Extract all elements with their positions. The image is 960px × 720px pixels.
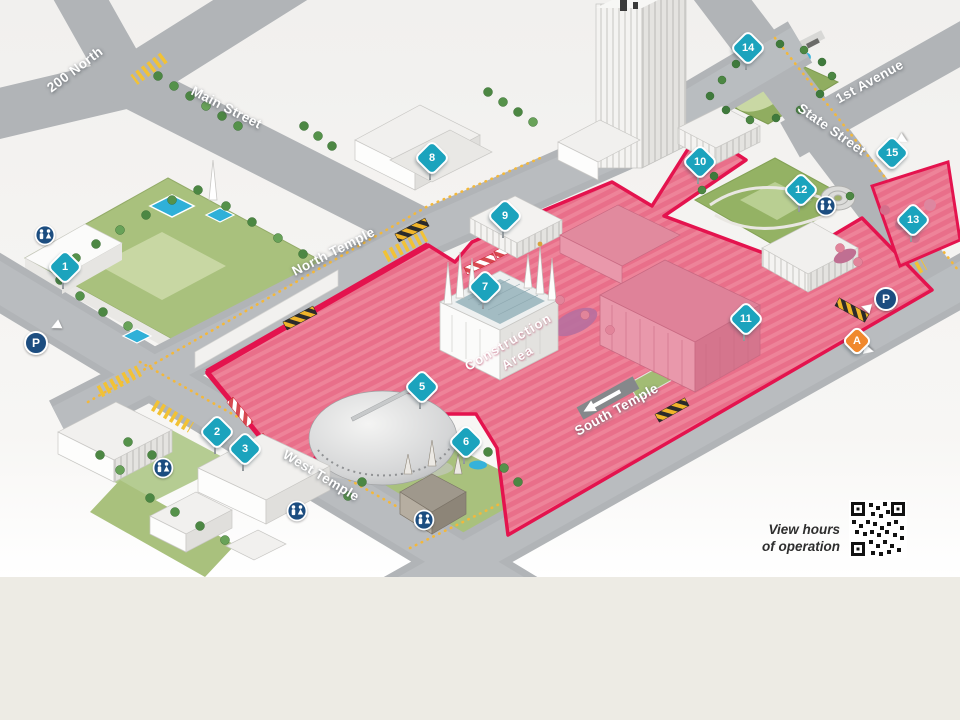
parking-icon: P bbox=[24, 331, 48, 355]
qr-caption: View hoursof operation bbox=[738, 522, 840, 556]
restroom-icon bbox=[152, 457, 174, 479]
parking-icon: P bbox=[874, 287, 898, 311]
restroom-icon bbox=[815, 195, 837, 217]
map-area: 200 North Main Street North Temple West … bbox=[0, 0, 960, 577]
restroom-icon bbox=[413, 509, 435, 531]
temple-square-map-page: 200 North Main Street North Temple West … bbox=[0, 0, 960, 720]
assembly-pond bbox=[469, 461, 487, 470]
restroom-icon bbox=[34, 224, 56, 246]
info-panel: Downtown Salt Lake City NORTH TEMPLE 15 … bbox=[0, 577, 960, 720]
restroom-icon bbox=[286, 500, 308, 522]
